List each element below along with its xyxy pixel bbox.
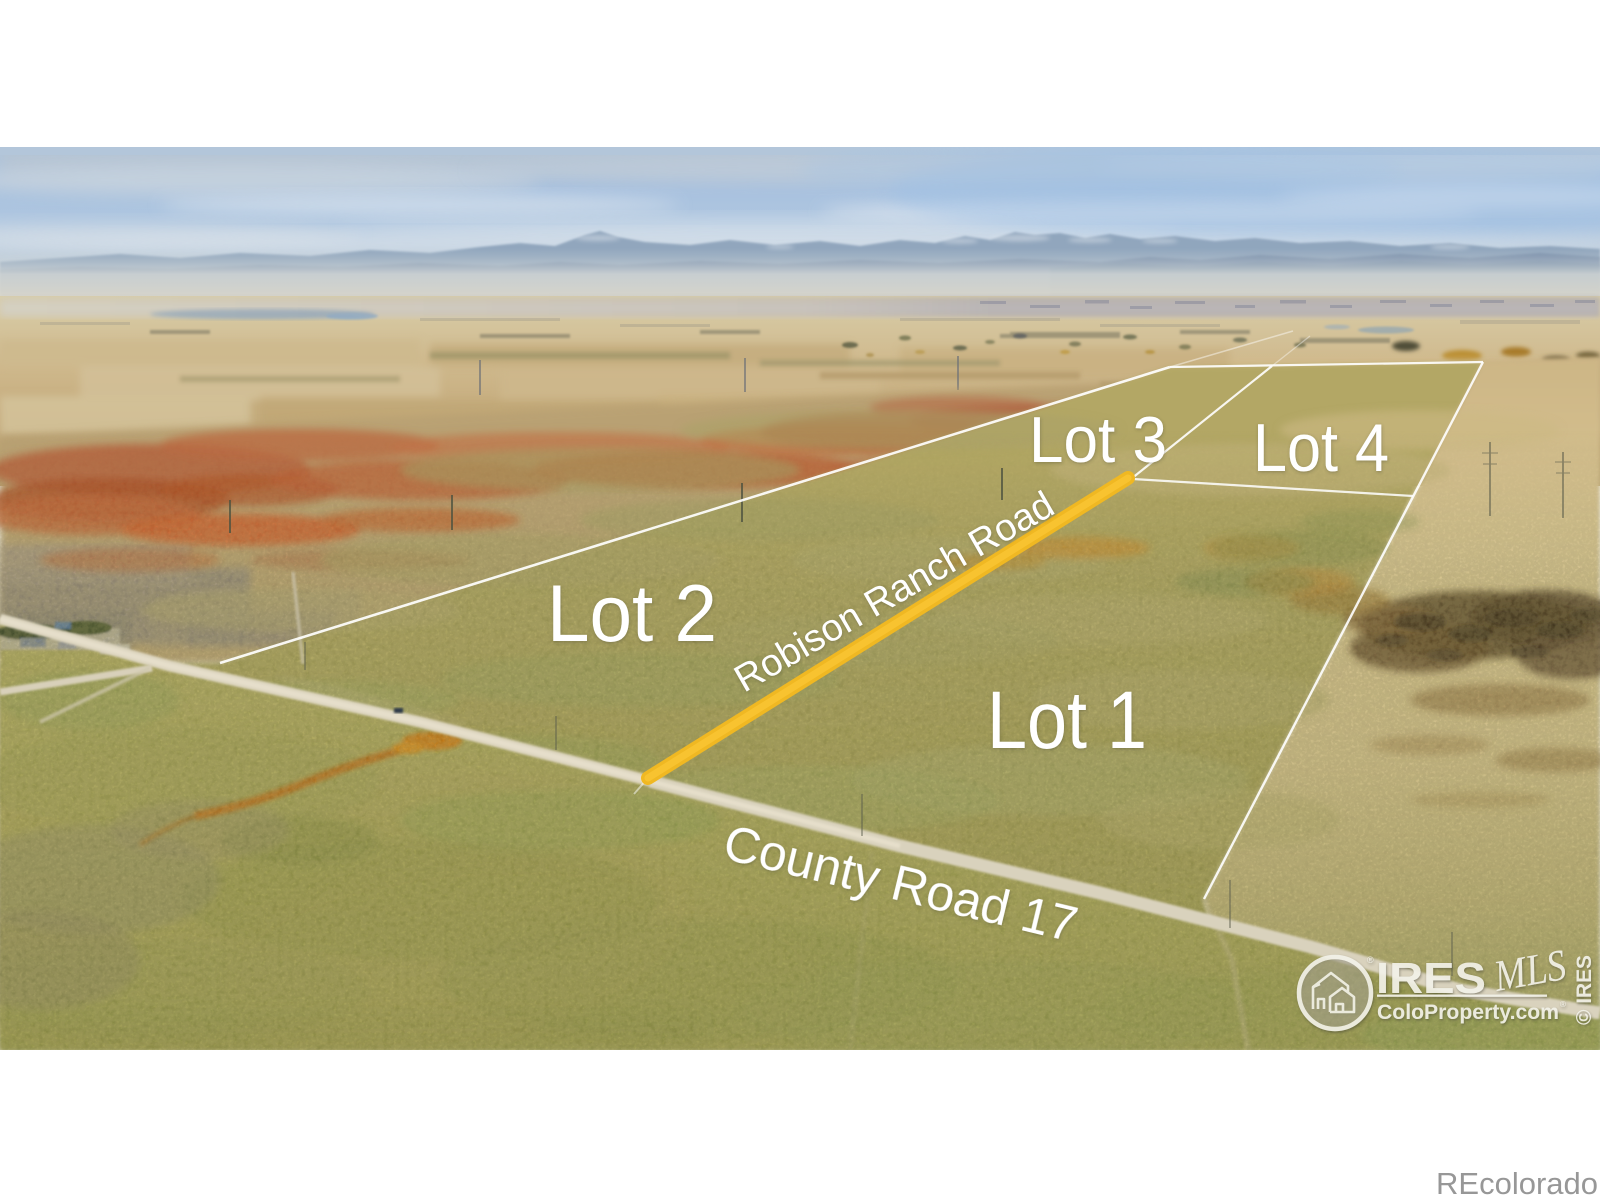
svg-text:ColoProperty.com: ColoProperty.com [1377,1001,1559,1024]
svg-text:®: ® [1367,955,1374,965]
svg-text:Lot 2: Lot 2 [547,569,717,659]
svg-text:Lot 3: Lot 3 [1029,403,1167,476]
svg-text:REcolorado: REcolorado [1436,1166,1598,1200]
svg-text:®: ® [1560,1000,1566,1009]
svg-text:© IRES: © IRES [1573,955,1596,1025]
svg-text:Lot 4: Lot 4 [1253,410,1389,486]
svg-text:Lot 1: Lot 1 [987,675,1147,766]
